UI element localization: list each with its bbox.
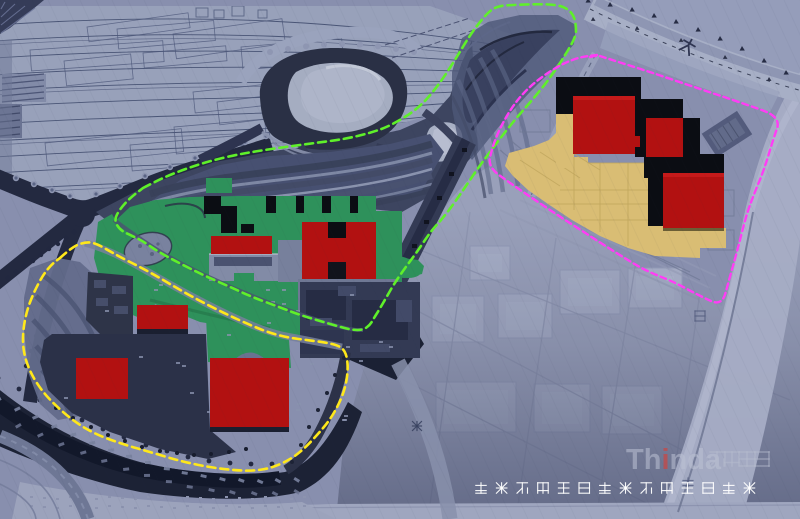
svg-text:Thinda: Thinda [626,444,722,476]
